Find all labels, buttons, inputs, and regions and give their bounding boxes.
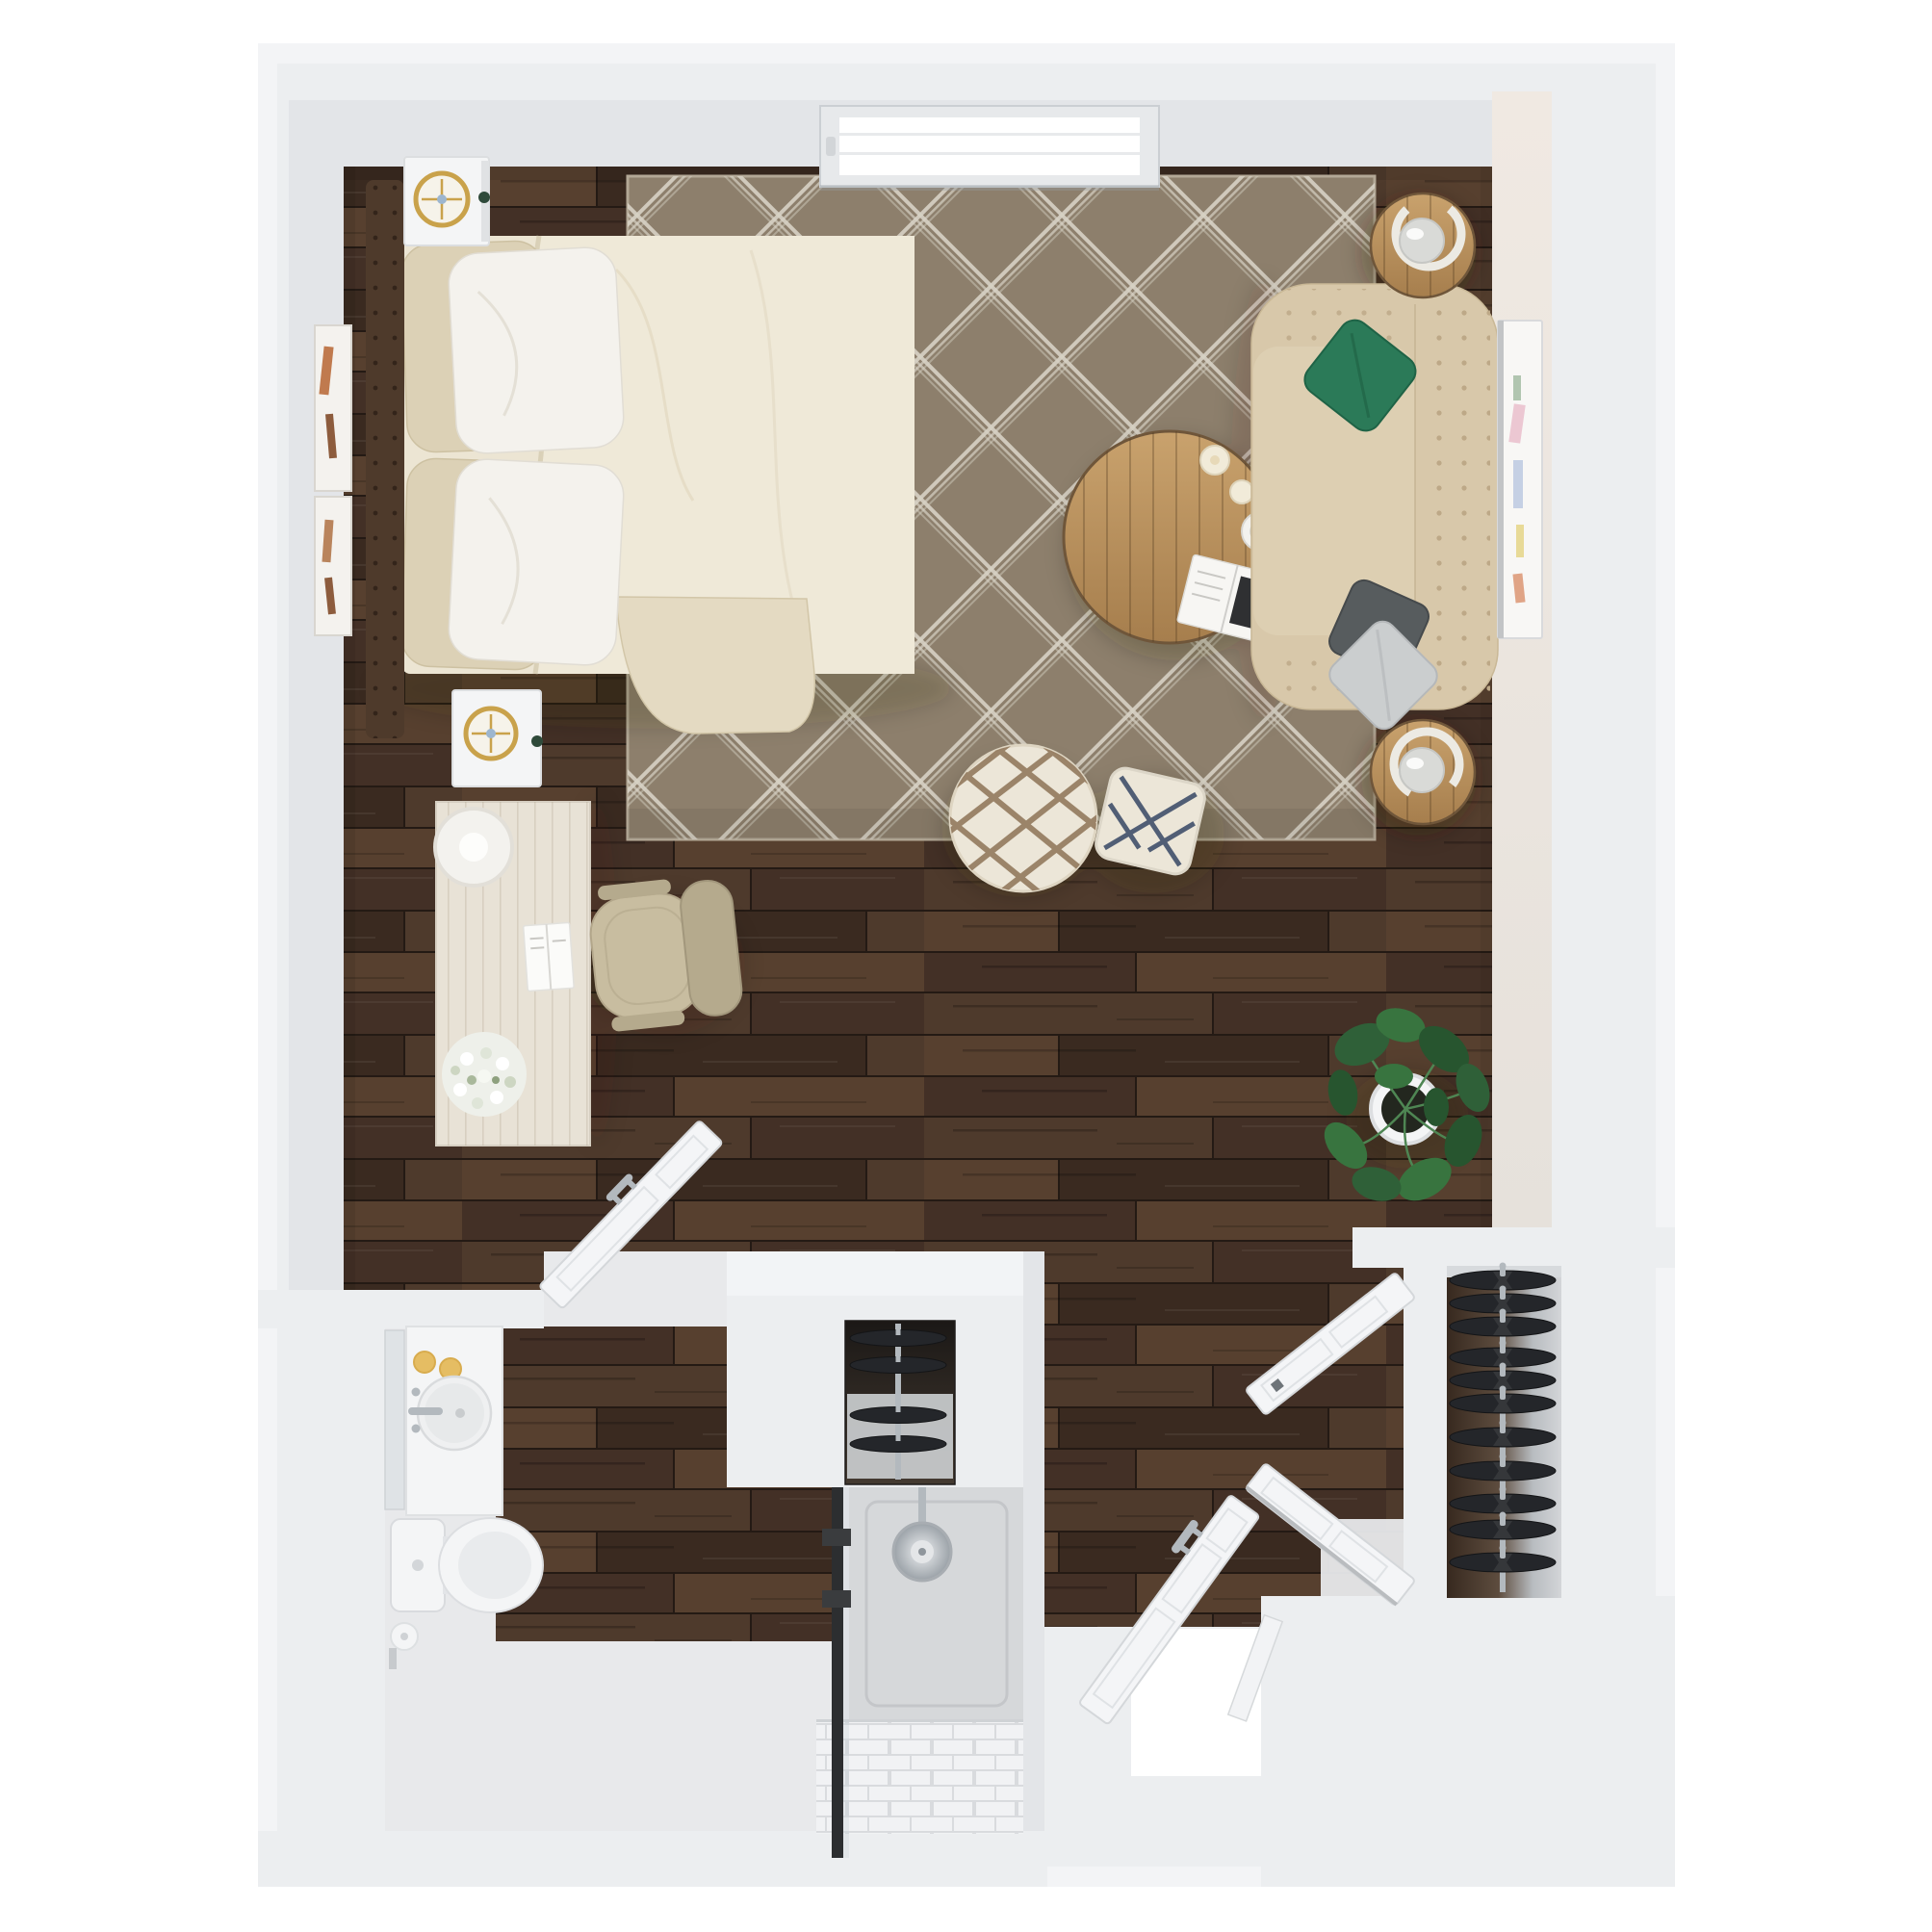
- nightstand-top: [404, 157, 490, 245]
- shower-door-hinge: [822, 1529, 851, 1546]
- nightstand-bottom: [452, 690, 543, 786]
- desk: [435, 802, 590, 1146]
- bottom-wall: [258, 1831, 1047, 1887]
- shower-door-hinge: [822, 1590, 851, 1608]
- small-vase: [478, 192, 490, 203]
- sofa: [1251, 284, 1498, 734]
- notebook: [524, 922, 575, 991]
- toilet: [391, 1518, 543, 1612]
- candle: [1230, 480, 1253, 503]
- wall-art-right: [1498, 321, 1542, 638]
- table-lamp-glass: [1400, 748, 1444, 792]
- small-vase: [531, 735, 543, 747]
- studio-floor-plan: [0, 0, 1932, 1932]
- table-lamp-glass: [1400, 219, 1444, 263]
- right-wall-face: [1492, 91, 1552, 1227]
- niche-rod: [895, 1324, 901, 1480]
- faucet: [408, 1407, 443, 1415]
- left-wall-face: [289, 100, 344, 1294]
- window-handle: [826, 137, 836, 156]
- flower-bouquet: [442, 1032, 527, 1117]
- desk-chair: [585, 872, 744, 1033]
- pillow-white-top: [448, 246, 626, 455]
- shower-tray: [849, 1487, 1023, 1721]
- side-table-bottom: [1371, 720, 1475, 824]
- bed: [366, 180, 914, 738]
- pillow-white-bottom: [448, 458, 626, 667]
- closet-top-wall: [1352, 1227, 1675, 1268]
- square-pouf: [1093, 765, 1207, 877]
- skylight-window: [820, 106, 1159, 191]
- soap-dish: [414, 1352, 435, 1373]
- wall-art-left: [315, 325, 351, 635]
- closet: [1447, 1263, 1561, 1599]
- storage-niche: [845, 1321, 955, 1484]
- divider-wall: [1023, 1251, 1044, 1839]
- shower: [816, 1487, 1023, 1858]
- floor-plan-image: [0, 0, 1932, 1932]
- vanity-mirror: [385, 1330, 404, 1509]
- bathroom-top-wall: [258, 1290, 544, 1328]
